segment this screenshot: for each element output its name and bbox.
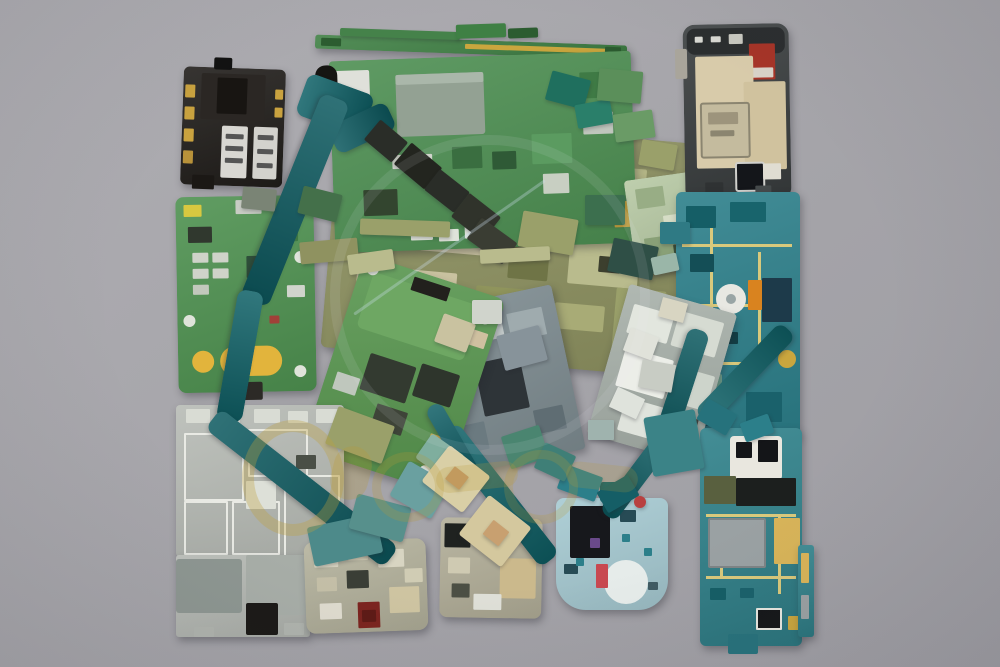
photo-circuit-boards xyxy=(0,0,1000,667)
shield-can xyxy=(543,173,570,194)
contact-pad xyxy=(192,253,208,263)
ic-chip xyxy=(492,151,517,170)
black-board-top-left xyxy=(180,66,286,187)
shield-can xyxy=(176,559,242,613)
teal-fragment xyxy=(660,222,690,244)
gold-contact-pad xyxy=(274,107,282,117)
ic-chip xyxy=(635,186,666,210)
pcb-fragment xyxy=(585,195,625,225)
connector-pin-row xyxy=(225,158,243,164)
red-component xyxy=(269,315,279,323)
connector xyxy=(389,586,420,613)
connector xyxy=(473,594,501,610)
bottom-tab xyxy=(284,623,304,635)
connector xyxy=(254,409,280,423)
contact-pad xyxy=(213,268,229,278)
sim-slot-opening xyxy=(708,112,738,125)
ic-chip xyxy=(644,548,652,556)
ic-chip xyxy=(730,202,766,222)
camera-lens xyxy=(736,442,752,458)
ic-chip xyxy=(412,363,461,408)
shield-can xyxy=(320,603,343,620)
ic-chip xyxy=(451,583,469,597)
shield-can xyxy=(332,371,360,396)
ic-chip xyxy=(740,588,754,598)
ic-chip xyxy=(363,189,398,216)
pcb-fragment xyxy=(360,218,451,237)
ic-chip xyxy=(622,534,630,542)
gold-contact-pad xyxy=(275,89,283,99)
connector-pin-row xyxy=(258,135,274,141)
connector-pin-row xyxy=(225,146,243,152)
pcb-fragment xyxy=(597,68,644,104)
shield-can xyxy=(801,595,809,619)
connector-pin-row xyxy=(226,134,244,140)
gold-contact-pad xyxy=(801,553,809,583)
shield-can xyxy=(588,420,614,440)
ic-chip xyxy=(690,254,714,272)
ic-chip xyxy=(531,133,572,164)
red-dot-component xyxy=(634,496,646,508)
solder-pad xyxy=(711,36,721,42)
orange-component xyxy=(748,280,762,310)
shield-can xyxy=(246,481,276,509)
ic-chip xyxy=(452,146,483,169)
tan-chip xyxy=(499,558,536,599)
connector xyxy=(186,409,210,423)
contact-pad xyxy=(193,269,209,279)
trace-line xyxy=(706,514,796,517)
ic-chip xyxy=(216,77,247,114)
camera-lens xyxy=(758,440,778,462)
ic-chip xyxy=(346,570,369,589)
gold-contact-disc xyxy=(192,351,214,373)
connector-pin-row xyxy=(257,149,273,155)
shield-outline xyxy=(232,501,280,555)
trace-line xyxy=(682,244,792,247)
photo-canvas xyxy=(0,0,1000,667)
ic-chip xyxy=(188,227,212,243)
pcb-strip xyxy=(456,23,506,39)
contact-pad xyxy=(212,252,228,262)
bottom-tab xyxy=(194,627,214,637)
ic-chip xyxy=(576,558,584,566)
black-connector xyxy=(246,603,278,635)
ic-chip xyxy=(448,557,470,573)
gold-contact-pad xyxy=(183,150,193,163)
ic-chip xyxy=(359,353,416,404)
ic-chip xyxy=(317,577,337,592)
screw-hole xyxy=(183,315,195,327)
connector-pin-row xyxy=(257,163,273,169)
teal-fragment xyxy=(643,409,705,477)
ic-chip xyxy=(736,478,796,506)
red-connector-slot xyxy=(362,610,376,622)
yellow-chip xyxy=(183,205,201,217)
empty-shield-frame xyxy=(708,518,766,568)
ic-chip xyxy=(756,608,782,630)
gold-contact-pad xyxy=(183,128,193,141)
shield-outline xyxy=(184,501,228,555)
shield-can xyxy=(287,285,305,297)
ic-chip xyxy=(762,278,792,322)
connector xyxy=(288,411,308,423)
ic-chip xyxy=(710,588,726,600)
ic-chip xyxy=(321,38,341,47)
trace-line xyxy=(706,576,796,579)
purple-component xyxy=(590,538,600,548)
contact-pad xyxy=(193,285,209,295)
gold-contact-pad xyxy=(184,106,194,119)
ic-chip xyxy=(296,455,316,469)
shield-can xyxy=(638,359,676,392)
bottom-tab xyxy=(728,634,758,654)
screw-hole xyxy=(294,365,306,377)
dark-phone-board-top-right xyxy=(682,23,791,201)
ic-chip xyxy=(686,206,716,228)
connector xyxy=(763,163,781,179)
gold-contact-pad xyxy=(185,84,195,97)
solder-pad xyxy=(695,37,703,43)
speaker-center xyxy=(726,294,736,304)
sticker-label xyxy=(751,67,773,77)
solder-pad xyxy=(729,34,743,44)
contact-row xyxy=(710,130,734,136)
speaker-ring xyxy=(604,560,648,604)
ic-chip xyxy=(648,582,658,590)
pcb-fragment xyxy=(612,109,656,142)
ic-chip xyxy=(404,568,422,583)
bottom-tab xyxy=(192,175,214,190)
ic-chip xyxy=(704,476,736,504)
right-edge-strip-board xyxy=(798,545,814,637)
pcb-strip xyxy=(508,27,538,38)
ic-chip xyxy=(553,302,605,332)
red-component xyxy=(596,564,608,588)
shield-can xyxy=(472,300,502,324)
teal-board-bottom-right xyxy=(700,428,802,646)
side-tab xyxy=(675,49,688,79)
top-component xyxy=(214,57,232,70)
silver-board-lower-section xyxy=(176,555,310,637)
pcb-fragment xyxy=(241,186,277,211)
gold-antenna-patch xyxy=(774,518,800,564)
